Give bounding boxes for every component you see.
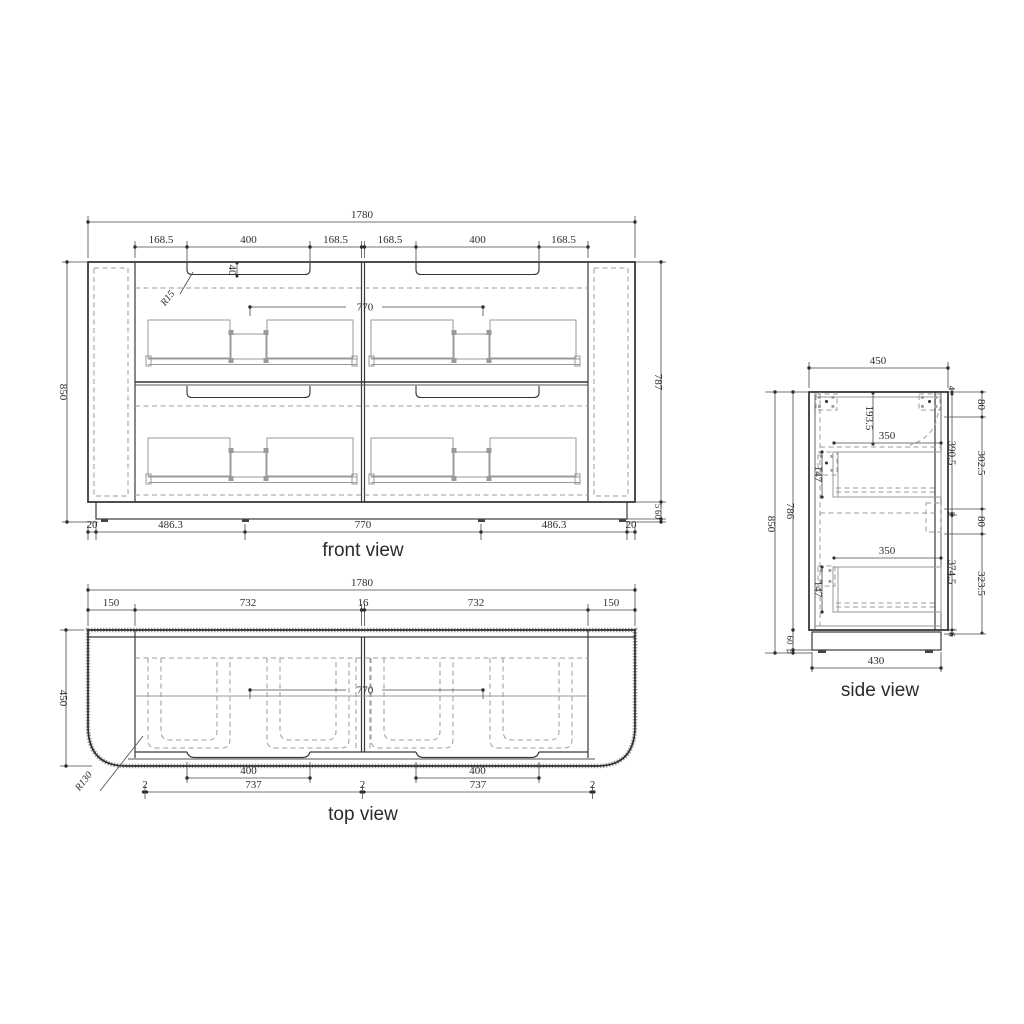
- top-view: 1780 150 732 16 732 150 450 770 400 400: [57, 577, 637, 825]
- dim-top-seg-5: 150: [603, 597, 620, 609]
- front-view: 1780 168.5 400 168.5 168.5 400 168.5 770…: [57, 209, 666, 561]
- side-view: 450 193.5 350 147 350 147 850 786 60: [765, 355, 987, 701]
- front-view-caption: front view: [322, 540, 404, 561]
- dim-top-handle-width-2: 400: [469, 765, 486, 777]
- vanity-cad-drawing: 1780 168.5 400 168.5 168.5 400 168.5 770…: [0, 0, 1024, 1024]
- dim-top-handle-spacing: 770: [357, 685, 374, 697]
- dim-front-handle-radius: R15: [158, 289, 177, 309]
- dim-side-outer-2: 302.5: [975, 451, 987, 476]
- dim-front-handle-depth: 40: [226, 265, 238, 277]
- dim-side-top-clearance: 193.5: [863, 406, 875, 431]
- dim-top-bottom-2: 737: [245, 779, 262, 791]
- dim-side-inner-2: 390.5: [946, 441, 958, 466]
- dim-top-bottom-4: 737: [470, 779, 487, 791]
- dim-side-drawer-width-2: 350: [879, 545, 896, 557]
- dim-front-bottom-3: 770: [355, 519, 372, 531]
- dim-top-bottom-3: 2: [360, 779, 366, 791]
- dim-front-handle-spacing: 770: [357, 302, 374, 314]
- dim-front-total-width: 1780: [351, 209, 374, 221]
- dim-side-inner-3: 2: [947, 512, 957, 517]
- dim-front-bottom-1: 20: [87, 519, 99, 531]
- dim-top-depth: 450: [57, 690, 69, 707]
- dim-front-total-height: 850: [57, 384, 69, 401]
- dim-top-total-width: 1780: [351, 577, 374, 589]
- dim-side-drawer-width-1: 350: [879, 430, 896, 442]
- dim-front-plinth: 60: [653, 510, 663, 520]
- front-handle-cutouts: [187, 263, 539, 398]
- dim-side-inner-5: 16: [947, 628, 957, 638]
- dim-top-seg-4: 732: [468, 597, 485, 609]
- dim-top-seg-3: 16: [358, 597, 370, 609]
- dim-front-bottom-5: 20: [626, 519, 638, 531]
- dim-side-bottom-width: 430: [868, 655, 885, 667]
- top-view-caption: top view: [328, 804, 398, 825]
- dim-side-outer-1: 80: [975, 399, 987, 411]
- dim-side-foot: 5: [785, 649, 795, 654]
- dim-front-seg-6: 168.5: [551, 234, 576, 246]
- side-drawer-boxes: [833, 452, 941, 612]
- dim-side-outer-3: 80: [975, 516, 987, 528]
- front-drawer-boxes: [146, 320, 580, 484]
- dim-top-bottom-1: 2: [142, 779, 148, 791]
- dim-side-inner-1: 4: [947, 386, 957, 391]
- dim-front-foot: 5: [653, 504, 663, 509]
- dim-top-seg-1: 150: [103, 597, 120, 609]
- dim-side-outer-4: 323.5: [975, 571, 987, 596]
- top-drawer-footprints: [148, 658, 572, 748]
- dim-side-drawer-height-1: 147: [812, 466, 824, 483]
- dim-front-bottom-4: 486.3: [542, 519, 567, 531]
- dim-front-seg-3: 168.5: [323, 234, 348, 246]
- top-countertop-outline: [88, 630, 635, 766]
- dim-front-seg-5: 400: [469, 234, 486, 246]
- dim-front-seg-2: 400: [240, 234, 257, 246]
- dim-top-corner-radius: R130: [73, 770, 95, 794]
- dim-side-total-height: 850: [765, 516, 777, 533]
- dim-front-seg-4: 168.5: [378, 234, 403, 246]
- dim-side-drawer-height-2: 147: [812, 581, 824, 598]
- dim-side-depth: 450: [870, 355, 887, 367]
- dim-side-inner-4: 374.5: [946, 560, 958, 585]
- dim-side-plinth: 60: [785, 636, 795, 646]
- dim-front-body-height: 787: [652, 374, 664, 391]
- dim-front-bottom-2: 486.3: [158, 519, 183, 531]
- side-view-caption: side view: [841, 680, 919, 701]
- dim-front-seg-1: 168.5: [149, 234, 174, 246]
- dim-top-bottom-5: 2: [590, 779, 596, 791]
- technical-drawing-sheet: 1780 168.5 400 168.5 168.5 400 168.5 770…: [0, 0, 1024, 1024]
- dim-side-body-height: 786: [784, 503, 796, 520]
- dim-top-seg-2: 732: [240, 597, 257, 609]
- dim-top-handle-width-1: 400: [240, 765, 257, 777]
